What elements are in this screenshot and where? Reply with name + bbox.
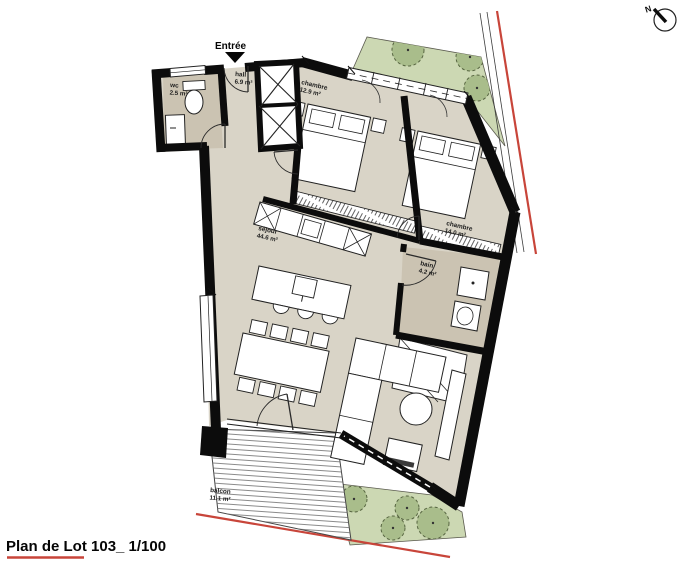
toilet [185,90,203,114]
room-label-balcon: balcon 11.1 m² [209,487,231,503]
entrance-label: Entrée [215,41,247,52]
chair [249,320,267,336]
room-area: 2.5 m² [169,89,187,97]
chair [270,324,288,340]
chair [237,377,255,393]
floor-plan-drawing: wc 2.5 m² hall 6.9 m² chambre 12.9 m² ch… [0,0,684,562]
room-area: 11.1 m² [209,494,231,503]
sink [292,276,317,298]
title-block: Plan de Lot 103_ 1/100 [6,538,166,558]
chair [290,328,308,344]
chair [311,333,329,349]
nightstand [371,118,386,133]
chair [299,390,317,406]
north-label: N [644,3,653,14]
plan-title: Plan de Lot 103_ 1/100 [6,538,166,555]
chair [258,382,276,398]
room-area: 6.9 m² [234,78,252,86]
coffee-table [400,393,432,425]
north-needle-icon [654,9,666,22]
toilet-tank [183,80,205,90]
entrance-arrow-icon [225,52,245,63]
entrance-marker: Entrée [215,41,247,63]
room-name: wc [169,82,179,90]
balcony [209,429,351,540]
room-name: hall [235,71,247,79]
north-indicator: N [644,3,676,31]
floor-plan-page: wc 2.5 m² hall 6.9 m² chambre 12.9 m² ch… [0,0,684,562]
shaft [257,62,300,149]
